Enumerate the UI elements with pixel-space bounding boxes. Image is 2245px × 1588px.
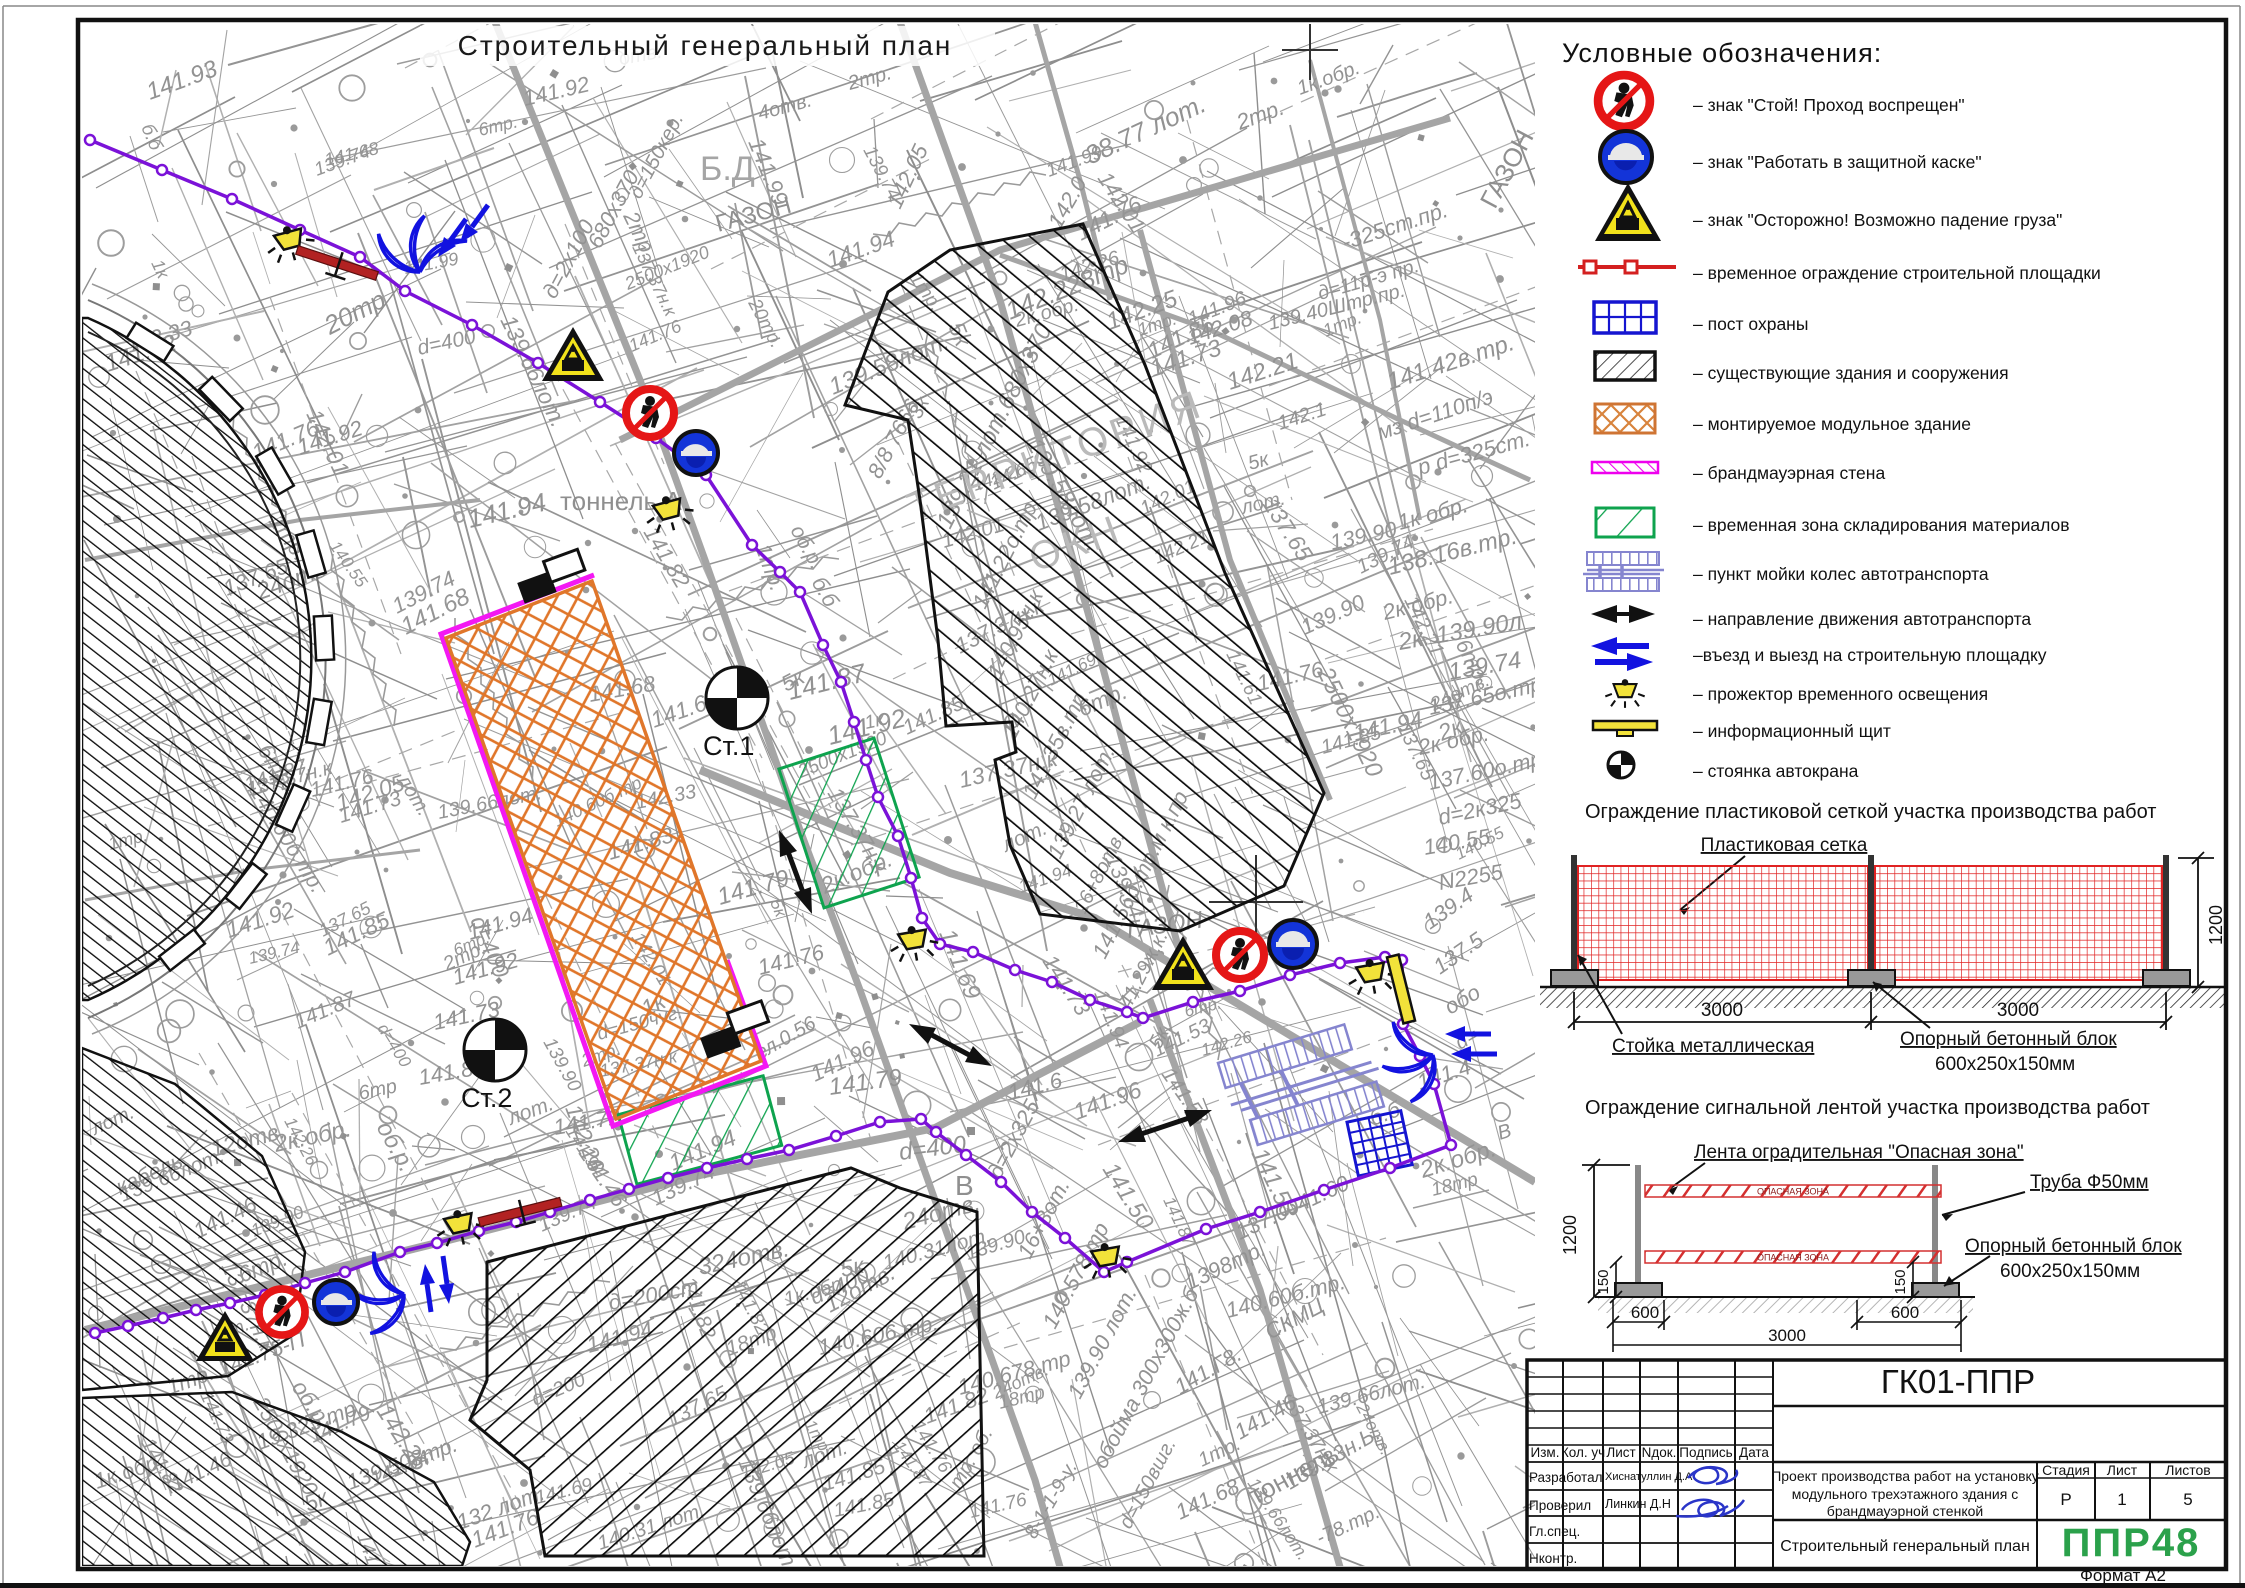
svg-text:ГК01-ППР: ГК01-ППР [1881, 1363, 2035, 1400]
svg-text:Ограждение сигнальной лентой у: Ограждение сигнальной лентой участка про… [1585, 1097, 2150, 1119]
svg-text:– знак "Осторожно! Возможно па: – знак "Осторожно! Возможно падение груз… [1693, 210, 2062, 230]
svg-text:1: 1 [2117, 1490, 2126, 1509]
svg-text:модульного трехэтажного здания: модульного трехэтажного здания с [1792, 1486, 2018, 1502]
svg-text:Строительный генеральный план: Строительный генеральный план [1780, 1538, 2030, 1555]
svg-text:Р: Р [2060, 1490, 2071, 1509]
svg-text:Лист: Лист [2107, 1462, 2138, 1478]
svg-text:Разработал: Разработал [1529, 1470, 1602, 1485]
svg-text:–въезд и выезд на строительную: –въезд и выезд на строительную площадку [1693, 645, 2047, 665]
svg-text:150: 150 [1892, 1269, 1909, 1294]
svg-text:Проект производства работ на у: Проект производства работ на установку [1771, 1468, 2039, 1484]
svg-text:Листов: Листов [2165, 1462, 2211, 1478]
svg-text:– временная зона складирования: – временная зона складирования материало… [1693, 515, 2070, 535]
svg-text:– направление движения автотра: – направление движения автотранспорта [1693, 609, 2031, 629]
svg-text:Ст.2: Ст.2 [461, 1083, 512, 1113]
svg-text:Проверил: Проверил [1529, 1498, 1591, 1513]
svg-text:600х250х150мм: 600х250х150мм [1935, 1054, 2075, 1075]
svg-text:Б.Д: Б.Д [700, 150, 755, 188]
svg-text:– пост охраны: – пост охраны [1693, 314, 1808, 334]
svg-text:– знак "Стой! Проход воспрещен: – знак "Стой! Проход воспрещен" [1693, 95, 1965, 115]
svg-text:3000: 3000 [1701, 1000, 1743, 1021]
svg-text:1200: 1200 [1560, 1215, 1580, 1255]
svg-text:– существующие здания и сооруж: – существующие здания и сооружения [1693, 363, 2009, 383]
svg-text:ОПАСНАЯ ЗОНА: ОПАСНАЯ ЗОНА [1757, 1187, 1829, 1197]
svg-text:600: 600 [1891, 1303, 1919, 1322]
svg-text:Дата: Дата [1739, 1445, 1769, 1460]
svg-text:Опорный бетонный блок: Опорный бетонный блок [1900, 1029, 2117, 1050]
svg-text:Линкин Д.Н: Линкин Д.Н [1605, 1497, 1671, 1511]
svg-text:3000: 3000 [1997, 1000, 2039, 1021]
svg-text:Подпись: Подпись [1679, 1445, 1732, 1460]
svg-text:– информационный щит: – информационный щит [1693, 721, 1891, 741]
svg-text:Труба Ф50мм: Труба Ф50мм [2030, 1172, 2149, 1193]
svg-text:Лента оградительная "Опасная з: Лента оградительная "Опасная зона" [1694, 1142, 2024, 1163]
svg-text:– прожектор временного освещен: – прожектор временного освещения [1693, 684, 1988, 704]
svg-text:Кол. уч: Кол. уч [1561, 1445, 1605, 1460]
svg-text:– пункт мойки колес автотрансп: – пункт мойки колес автотранспорта [1693, 564, 1989, 584]
svg-text:ОПАСНАЯ ЗОНА: ОПАСНАЯ ЗОНА [1757, 1253, 1829, 1263]
svg-text:Nдок.: Nдок. [1642, 1445, 1677, 1460]
svg-text:Лист: Лист [1606, 1445, 1635, 1460]
svg-text:– знак "Работать в защитной ка: – знак "Работать в защитной каске" [1693, 152, 1982, 172]
svg-text:Нконтр.: Нконтр. [1529, 1551, 1577, 1566]
svg-text:3000: 3000 [1768, 1326, 1806, 1345]
svg-text:В: В [955, 1170, 974, 1201]
svg-text:Хиснатуллин Д.А: Хиснатуллин Д.А [1605, 1471, 1693, 1483]
svg-text:600: 600 [1631, 1303, 1659, 1322]
svg-text:– брандмауэрная стена: – брандмауэрная стена [1693, 463, 1885, 483]
svg-text:600х250х150мм: 600х250х150мм [2000, 1261, 2140, 1282]
svg-text:Стадия: Стадия [2042, 1462, 2090, 1478]
svg-text:1200: 1200 [2206, 905, 2226, 945]
svg-text:ППР48: ППР48 [2062, 1521, 2201, 1565]
svg-text:Ограждение пластиковой сеткой: Ограждение пластиковой сеткой участка пр… [1585, 801, 2156, 823]
svg-text:Гл.спец.: Гл.спец. [1529, 1524, 1580, 1539]
svg-text:5: 5 [2183, 1490, 2192, 1509]
svg-text:150: 150 [1595, 1269, 1612, 1294]
svg-text:– временное ограждение строите: – временное ограждение строительной площ… [1693, 263, 2101, 283]
svg-text:Изм.: Изм. [1531, 1445, 1560, 1460]
svg-text:Строительный генеральный план: Строительный генеральный план [458, 30, 953, 61]
svg-text:Опорный бетонный блок: Опорный бетонный блок [1965, 1236, 2182, 1257]
svg-text:Пластиковая сетка: Пластиковая сетка [1701, 835, 1868, 856]
svg-text:Ст.1: Ст.1 [703, 731, 754, 761]
svg-text:– стоянка автокрана: – стоянка автокрана [1693, 761, 1859, 781]
svg-text:– монтируемое модульное здание: – монтируемое модульное здание [1693, 414, 1971, 434]
svg-text:Стойка металлическая: Стойка металлическая [1612, 1036, 1814, 1057]
svg-text:брандмауэрной стенкой: брандмауэрной стенкой [1827, 1503, 1983, 1519]
svg-text:Формат А2: Формат А2 [2080, 1566, 2166, 1585]
svg-text:Условные обозначения:: Условные обозначения: [1562, 38, 1882, 68]
